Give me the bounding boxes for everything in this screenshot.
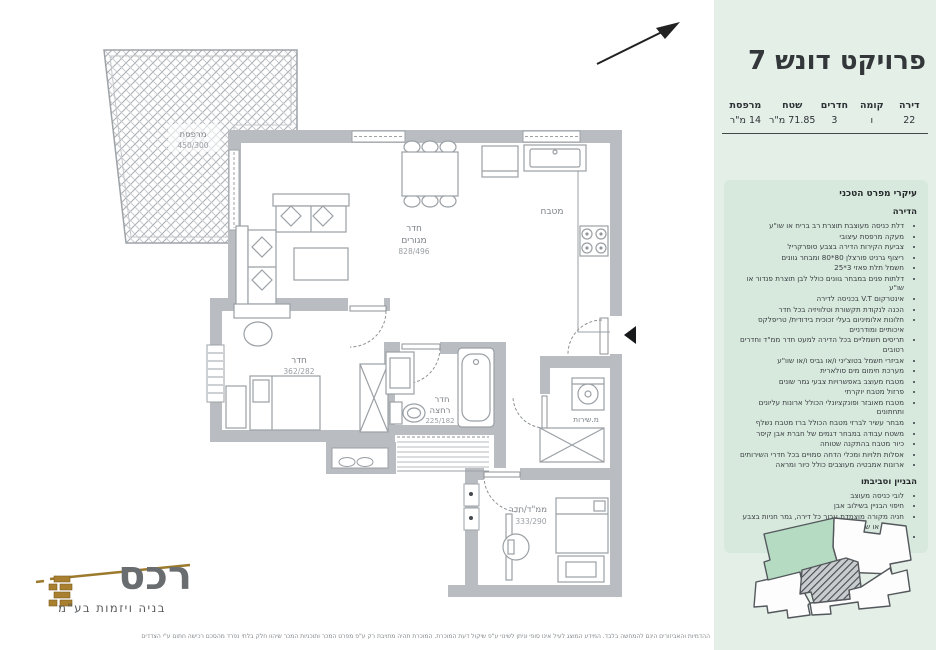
spec-item: חשמל תלת פאזי 3*25 bbox=[732, 263, 904, 273]
living-room-label: חדר bbox=[406, 224, 422, 234]
val-apartment: 22 bbox=[891, 115, 928, 126]
spec-item: ארונות אמבטיה מעוצבים כולל כיור ומראה bbox=[732, 460, 904, 470]
living-room-dims: 828/496 bbox=[398, 247, 429, 256]
spec-item: דלת כניסה מעוצבת תוצרת רב בריח או שו"ע bbox=[732, 221, 904, 231]
flyer-page: מרפסת 450/300 bbox=[0, 0, 950, 650]
bath-label2: רחצה bbox=[430, 406, 451, 416]
col-area: שטח bbox=[769, 100, 816, 111]
north-arrow-icon bbox=[597, 22, 680, 64]
spec-item: חלונות אלומיניום בעלי זכוכית בידודית/ טר… bbox=[732, 315, 904, 334]
company-logo: רכס בניה ויזמות בע"מ bbox=[16, 552, 196, 624]
col-floor: קומה bbox=[853, 100, 890, 111]
val-floor: ו bbox=[853, 115, 890, 126]
mamad-label: ממ"ד/חדר bbox=[509, 505, 547, 515]
apartment-table-values: 22 ו 3 71.85 מ"ר 14 מ"ר bbox=[722, 115, 928, 126]
apartment-table: דירה קומה חדרים שטח מרפסת 22 ו 3 71.85 מ… bbox=[722, 100, 928, 134]
kitchen-label: מטבח bbox=[540, 207, 563, 217]
spec-item: לובי כניסה מעוצב bbox=[732, 491, 904, 501]
spec-item: אביזרי חשמל בטוצ'יני ו/או גביס ו/או שוו"… bbox=[732, 356, 904, 366]
col-apartment: דירה bbox=[891, 100, 928, 111]
spec-list-apartment: דלת כניסה מעוצבת תוצרת רב בריח או שו"עמע… bbox=[732, 221, 917, 470]
project-title: פרויקט דונש 7 bbox=[722, 46, 926, 76]
apartment-table-header: דירה קומה חדרים שטח מרפסת bbox=[722, 100, 928, 115]
spec-item: מטבח מעוצב באפשרויות צבעי גמר שונים bbox=[732, 377, 904, 387]
spec-section-apartment: הדירה bbox=[732, 207, 917, 217]
spec-item: משטח עבודה במבחר דגמים של חברת אבן קיסר bbox=[732, 429, 904, 439]
balcony-dims: 450/300 bbox=[177, 141, 208, 150]
val-balcony: 14 מ"ר bbox=[722, 115, 769, 126]
spec-item: מטבח מאובזר ופונקציונלי הכולל ארונות עלי… bbox=[732, 398, 904, 417]
living-room-label2: מגורים bbox=[401, 236, 426, 246]
kitchen-fixtures bbox=[482, 145, 610, 332]
spec-item: ריצוף גרניט פורצלן 80*80 ומבחר גוונים bbox=[732, 253, 904, 263]
spec-item: דלתות פנים במבחר גוונים כולל לבן תוצרת פ… bbox=[732, 274, 904, 293]
bedroom-label: חדר bbox=[291, 356, 307, 366]
balcony-label: מרפסת bbox=[180, 130, 207, 140]
bedroom-dims: 362/282 bbox=[283, 367, 314, 376]
bath-dims: 225/182 bbox=[425, 417, 454, 425]
floor-key-plan bbox=[742, 502, 932, 630]
mamad-dims: 333/290 bbox=[515, 517, 546, 526]
spec-section-building: הבניין וסביבתו bbox=[732, 477, 917, 487]
entry-marker-icon bbox=[624, 326, 636, 344]
bath-label: חדר bbox=[435, 395, 450, 405]
spec-item: צביעת הקירות הדירה בצבע סופרקריל bbox=[732, 242, 904, 252]
spec-item: הכנה לנקודת תקשורת וטלוויזיה בכל חדר bbox=[732, 305, 904, 315]
val-area: 71.85 מ"ר bbox=[769, 115, 816, 126]
spec-item: מבחר עשיר לברזי מטבח הכולל ברז מטבח נשלף bbox=[732, 418, 904, 428]
col-balcony: מרפסת bbox=[722, 100, 769, 111]
spec-item: אסלות תלויות ומכלי הדחה סמויים בכל חדרי … bbox=[732, 450, 904, 460]
val-rooms: 3 bbox=[816, 115, 853, 126]
logo-tagline: בניה ויזמות בע"מ bbox=[28, 601, 196, 615]
balcony: מרפסת 450/300 bbox=[104, 50, 297, 243]
disclaimer-text: ההדמיות והאביזורים הינם להמחשה בלבד. המי… bbox=[8, 633, 710, 640]
col-rooms: חדרים bbox=[816, 100, 853, 111]
spec-item: כיור מטבח בהתקנה שטוחה bbox=[732, 439, 904, 449]
logo-name: רכס bbox=[118, 556, 192, 596]
spec-item: אינטרקום V.T בכניסה לדירה bbox=[732, 294, 904, 304]
service-label: מ.שירות bbox=[573, 415, 599, 424]
spec-item: מעקה מרפסת עיצובי bbox=[732, 232, 904, 242]
spec-item: מערכת חימום מים סולארית bbox=[732, 366, 904, 376]
info-panel: פרויקט דונש 7 דירה קומה חדרים שטח מרפסת … bbox=[714, 0, 936, 650]
spec-item: תריסים חשמליים בכל הדירה למעט חדר ממ"ד ו… bbox=[732, 335, 904, 354]
living-room-furniture bbox=[236, 141, 458, 308]
spec-box: עיקרי מפרט הטכני הדירה דלת כניסה מעוצבת … bbox=[724, 180, 928, 553]
spec-item: פרזול מטבח יוקרתי bbox=[732, 387, 904, 397]
spec-title: עיקרי מפרט הטכני bbox=[732, 189, 917, 199]
